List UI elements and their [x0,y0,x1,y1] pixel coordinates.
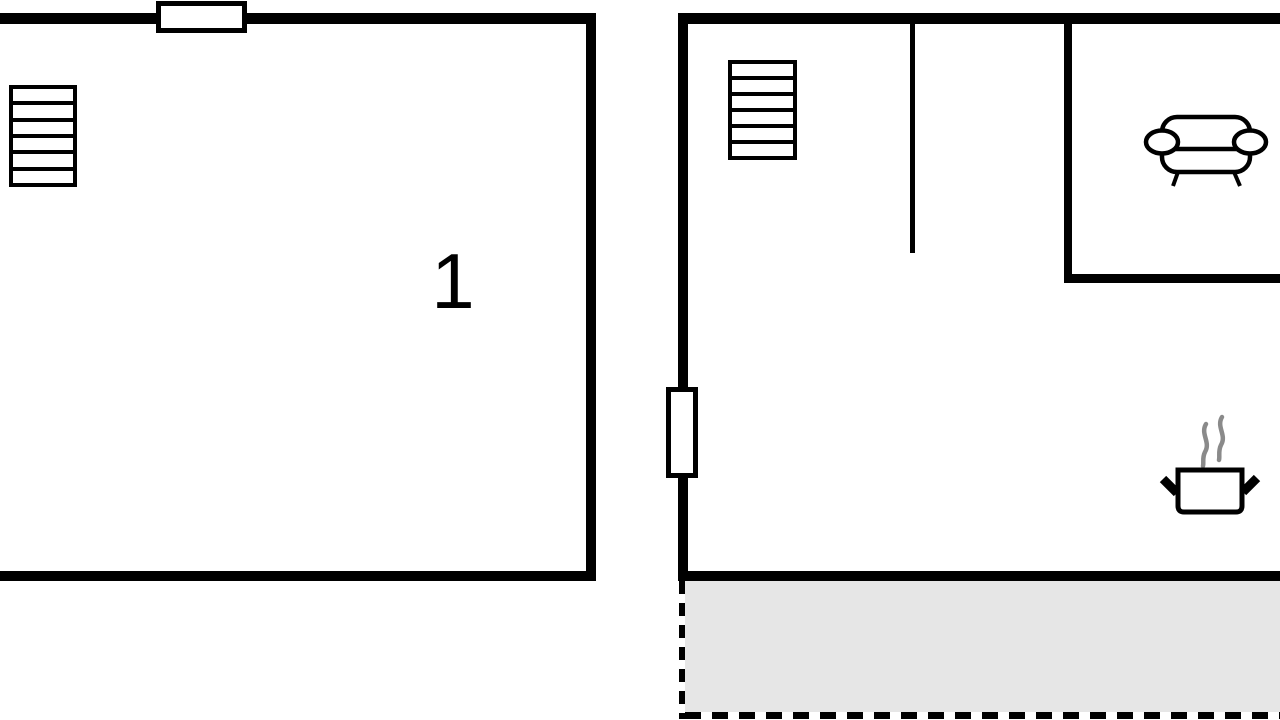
sofa-armrest [1146,131,1178,154]
radiator-slat [13,122,73,138]
terrace-dashed-bottom-border [685,712,1280,719]
right-unit-left-wall [678,13,688,581]
radiator-slat [732,64,793,80]
radiator-slat [732,128,793,144]
radiator-slat [13,171,73,183]
radiator-icon [9,85,77,187]
pot-handle [1243,478,1257,492]
cooking-pot-icon [1155,408,1265,520]
radiator-slat [13,105,73,121]
floor-plan: 1 [0,0,1280,720]
radiator-slat [732,80,793,96]
sofa-icon [1140,108,1270,190]
right-unit-top-wall [678,13,1280,24]
terrace-dashed-left-border [679,581,685,719]
pot-handle [1163,479,1177,493]
radiator-icon [728,60,797,160]
left-room-bottom-wall [0,571,596,581]
radiator-slat [13,138,73,154]
sofa-armrest [1234,131,1266,154]
terrace-area [685,581,1280,712]
right-unit-bottom-wall [678,571,1280,581]
left-room-right-wall [586,13,596,581]
radiator-slat [732,112,793,128]
window-icon [156,1,247,33]
radiator-slat [732,144,793,156]
interior-wall [910,24,915,253]
steam-icon [1219,417,1223,460]
steam-icon [1203,424,1207,466]
left-room-top-wall [0,13,596,24]
radiator-slat [13,89,73,105]
room-label: 1 [413,239,493,323]
radiator-slat [13,154,73,170]
door-icon [666,387,698,478]
lounge-partition-vertical-wall [1064,24,1072,283]
radiator-slat [732,96,793,112]
pot-body [1178,470,1242,512]
lounge-partition-horizontal-wall [1064,274,1280,283]
